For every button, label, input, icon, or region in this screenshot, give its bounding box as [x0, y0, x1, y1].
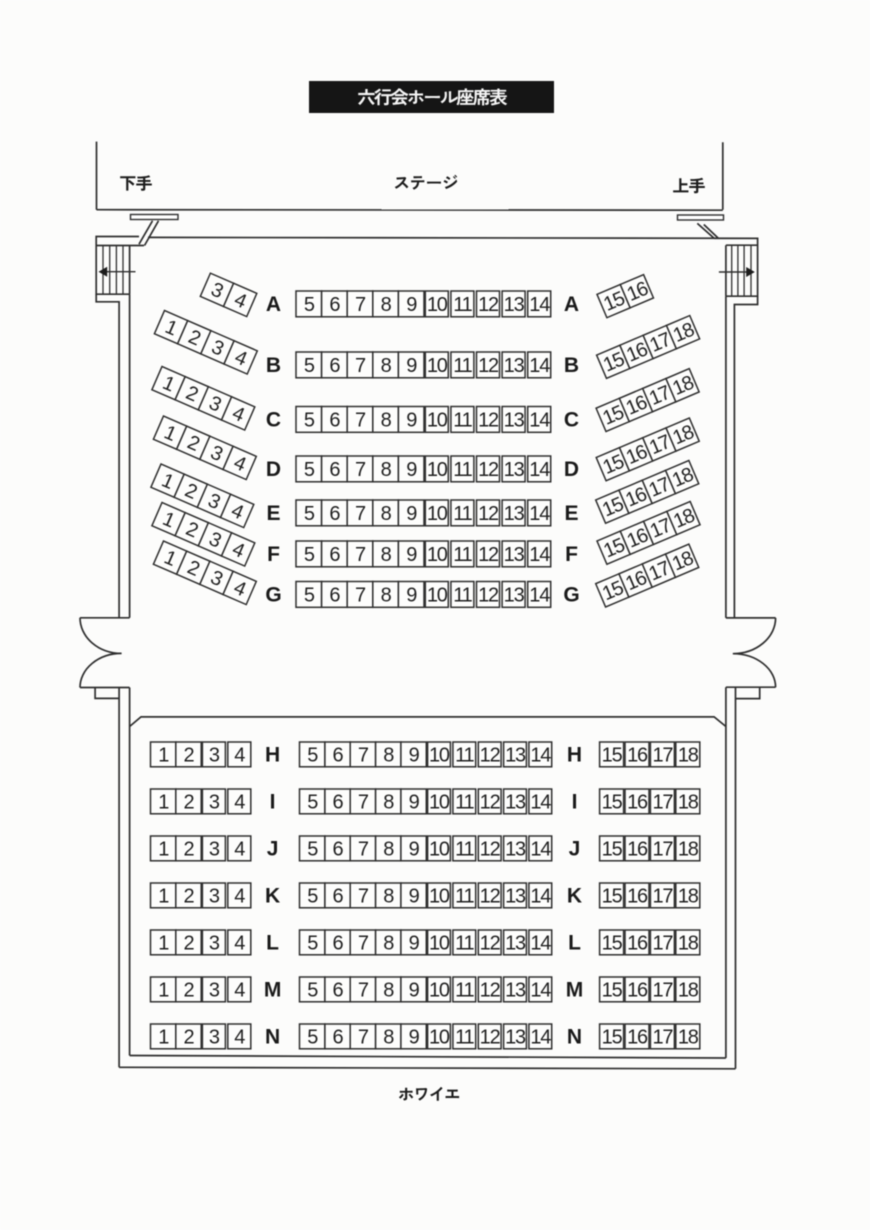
- svg-text:14: 14: [530, 1026, 551, 1048]
- svg-text:13: 13: [505, 885, 526, 907]
- svg-text:12: 12: [478, 409, 499, 431]
- svg-text:6: 6: [333, 885, 344, 907]
- svg-text:14: 14: [529, 459, 550, 481]
- svg-text:D: D: [266, 458, 281, 481]
- svg-text:12: 12: [480, 979, 501, 1001]
- svg-text:10: 10: [429, 791, 450, 813]
- svg-text:3: 3: [209, 932, 220, 954]
- svg-text:11: 11: [455, 791, 474, 813]
- svg-text:5: 5: [304, 584, 315, 606]
- svg-text:2: 2: [184, 838, 195, 860]
- svg-text:H: H: [265, 744, 280, 767]
- svg-text:7: 7: [355, 544, 366, 566]
- svg-text:12: 12: [478, 355, 499, 377]
- svg-text:17: 17: [652, 979, 673, 1001]
- svg-text:4: 4: [234, 932, 245, 954]
- svg-text:11: 11: [455, 979, 474, 1001]
- svg-text:16: 16: [627, 744, 648, 766]
- svg-text:10: 10: [427, 459, 448, 481]
- svg-text:17: 17: [652, 1026, 673, 1048]
- svg-text:3: 3: [209, 979, 220, 1001]
- svg-text:10: 10: [427, 503, 448, 525]
- svg-text:15: 15: [602, 1026, 623, 1048]
- svg-text:14: 14: [529, 355, 550, 377]
- svg-text:11: 11: [455, 932, 474, 954]
- svg-text:6: 6: [333, 838, 344, 860]
- svg-text:8: 8: [381, 503, 392, 525]
- svg-text:8: 8: [383, 885, 394, 907]
- svg-text:11: 11: [453, 409, 472, 431]
- svg-text:F: F: [565, 543, 578, 566]
- svg-text:5: 5: [307, 885, 318, 907]
- svg-text:8: 8: [381, 459, 392, 481]
- svg-text:7: 7: [355, 409, 366, 431]
- svg-text:7: 7: [355, 294, 366, 316]
- svg-text:6: 6: [333, 744, 344, 766]
- svg-text:17: 17: [652, 838, 673, 860]
- svg-text:7: 7: [358, 791, 369, 813]
- svg-text:14: 14: [530, 979, 551, 1001]
- svg-text:9: 9: [406, 503, 417, 525]
- svg-text:8: 8: [381, 584, 392, 606]
- svg-text:10: 10: [429, 979, 450, 1001]
- svg-text:12: 12: [480, 838, 501, 860]
- svg-text:B: B: [266, 354, 281, 377]
- svg-text:12: 12: [478, 544, 499, 566]
- svg-text:6: 6: [333, 791, 344, 813]
- svg-text:12: 12: [480, 885, 501, 907]
- svg-text:5: 5: [307, 979, 318, 1001]
- svg-text:3: 3: [209, 1026, 220, 1048]
- svg-text:8: 8: [383, 838, 394, 860]
- svg-text:13: 13: [504, 294, 525, 316]
- svg-text:18: 18: [678, 744, 699, 766]
- svg-text:7: 7: [355, 459, 366, 481]
- svg-text:7: 7: [355, 503, 366, 525]
- svg-text:9: 9: [409, 885, 420, 907]
- svg-text:5: 5: [307, 1026, 318, 1048]
- svg-text:16: 16: [627, 885, 648, 907]
- svg-text:11: 11: [453, 294, 472, 316]
- svg-text:8: 8: [381, 409, 392, 431]
- svg-text:14: 14: [530, 885, 551, 907]
- svg-text:11: 11: [455, 744, 474, 766]
- svg-text:14: 14: [530, 932, 551, 954]
- svg-text:4: 4: [234, 838, 245, 860]
- svg-text:15: 15: [602, 791, 623, 813]
- svg-text:10: 10: [427, 544, 448, 566]
- svg-text:B: B: [564, 354, 579, 377]
- svg-text:L: L: [568, 932, 581, 955]
- svg-text:8: 8: [383, 979, 394, 1001]
- svg-text:8: 8: [381, 355, 392, 377]
- svg-text:8: 8: [381, 294, 392, 316]
- svg-text:15: 15: [602, 744, 623, 766]
- svg-text:1: 1: [158, 1026, 169, 1048]
- svg-text:15: 15: [602, 932, 623, 954]
- svg-text:8: 8: [383, 932, 394, 954]
- svg-text:5: 5: [304, 409, 315, 431]
- svg-text:14: 14: [529, 409, 550, 431]
- svg-text:8: 8: [381, 544, 392, 566]
- svg-text:2: 2: [184, 932, 195, 954]
- svg-text:5: 5: [307, 838, 318, 860]
- svg-text:6: 6: [329, 503, 340, 525]
- svg-text:5: 5: [304, 544, 315, 566]
- svg-text:9: 9: [406, 355, 417, 377]
- svg-text:M: M: [264, 979, 282, 1002]
- svg-text:2: 2: [184, 791, 195, 813]
- svg-text:3: 3: [209, 838, 220, 860]
- svg-text:G: G: [265, 584, 281, 607]
- svg-text:11: 11: [455, 1026, 474, 1048]
- svg-text:10: 10: [427, 409, 448, 431]
- svg-text:2: 2: [184, 979, 195, 1001]
- svg-text:11: 11: [455, 838, 474, 860]
- svg-text:18: 18: [678, 932, 699, 954]
- svg-text:17: 17: [652, 744, 673, 766]
- svg-text:6: 6: [329, 355, 340, 377]
- svg-text:4: 4: [234, 979, 245, 1001]
- svg-text:7: 7: [355, 355, 366, 377]
- svg-text:17: 17: [652, 791, 673, 813]
- svg-text:6: 6: [333, 1026, 344, 1048]
- svg-text:F: F: [267, 543, 280, 566]
- svg-text:10: 10: [429, 744, 450, 766]
- svg-text:1: 1: [158, 885, 169, 907]
- svg-text:1: 1: [158, 744, 169, 766]
- svg-text:7: 7: [358, 1026, 369, 1048]
- svg-text:18: 18: [678, 838, 699, 860]
- svg-text:5: 5: [304, 294, 315, 316]
- svg-text:11: 11: [453, 584, 472, 606]
- svg-text:L: L: [266, 932, 279, 955]
- svg-text:15: 15: [602, 838, 623, 860]
- svg-text:4: 4: [234, 791, 245, 813]
- svg-text:6: 6: [329, 584, 340, 606]
- svg-text:9: 9: [409, 838, 420, 860]
- svg-text:J: J: [569, 838, 581, 861]
- svg-text:G: G: [563, 584, 579, 607]
- svg-text:10: 10: [429, 885, 450, 907]
- svg-text:13: 13: [504, 459, 525, 481]
- svg-text:14: 14: [530, 791, 551, 813]
- svg-text:5: 5: [304, 503, 315, 525]
- svg-text:13: 13: [504, 355, 525, 377]
- svg-text:13: 13: [504, 409, 525, 431]
- svg-text:16: 16: [627, 838, 648, 860]
- svg-text:12: 12: [480, 1026, 501, 1048]
- svg-text:6: 6: [329, 294, 340, 316]
- svg-text:11: 11: [455, 885, 474, 907]
- svg-text:9: 9: [409, 1026, 420, 1048]
- svg-text:18: 18: [678, 791, 699, 813]
- svg-text:2: 2: [184, 1026, 195, 1048]
- svg-text:12: 12: [478, 584, 499, 606]
- svg-text:14: 14: [529, 544, 550, 566]
- svg-text:10: 10: [427, 294, 448, 316]
- svg-text:18: 18: [678, 885, 699, 907]
- svg-text:9: 9: [406, 544, 417, 566]
- svg-text:7: 7: [358, 885, 369, 907]
- svg-text:16: 16: [627, 791, 648, 813]
- svg-text:12: 12: [480, 744, 501, 766]
- svg-text:K: K: [265, 885, 280, 908]
- svg-text:14: 14: [529, 503, 550, 525]
- svg-text:A: A: [266, 293, 281, 316]
- svg-text:11: 11: [453, 459, 472, 481]
- svg-text:6: 6: [329, 459, 340, 481]
- svg-text:14: 14: [530, 838, 551, 860]
- svg-text:2: 2: [184, 885, 195, 907]
- svg-text:1: 1: [158, 791, 169, 813]
- svg-text:13: 13: [505, 744, 526, 766]
- svg-text:7: 7: [355, 584, 366, 606]
- svg-text:17: 17: [652, 932, 673, 954]
- svg-text:7: 7: [358, 838, 369, 860]
- svg-text:1: 1: [158, 838, 169, 860]
- svg-text:16: 16: [627, 1026, 648, 1048]
- svg-text:E: E: [266, 502, 280, 525]
- svg-text:16: 16: [627, 979, 648, 1001]
- svg-text:C: C: [564, 409, 579, 432]
- svg-text:10: 10: [429, 838, 450, 860]
- svg-text:14: 14: [530, 744, 551, 766]
- svg-text:7: 7: [358, 979, 369, 1001]
- svg-text:14: 14: [529, 294, 550, 316]
- svg-text:9: 9: [406, 584, 417, 606]
- svg-text:6: 6: [329, 544, 340, 566]
- svg-text:N: N: [567, 1026, 582, 1049]
- svg-text:I: I: [572, 791, 578, 814]
- svg-text:5: 5: [307, 791, 318, 813]
- svg-text:12: 12: [478, 503, 499, 525]
- svg-text:K: K: [567, 885, 582, 908]
- svg-text:10: 10: [429, 1026, 450, 1048]
- svg-text:13: 13: [504, 544, 525, 566]
- svg-text:1: 1: [158, 932, 169, 954]
- svg-text:10: 10: [429, 932, 450, 954]
- svg-text:1: 1: [158, 979, 169, 1001]
- svg-text:13: 13: [504, 503, 525, 525]
- svg-text:10: 10: [427, 355, 448, 377]
- svg-text:17: 17: [652, 885, 673, 907]
- svg-text:15: 15: [602, 885, 623, 907]
- svg-text:I: I: [270, 791, 276, 814]
- svg-text:9: 9: [409, 791, 420, 813]
- svg-text:6: 6: [329, 409, 340, 431]
- svg-text:6: 6: [333, 932, 344, 954]
- svg-text:12: 12: [478, 294, 499, 316]
- svg-text:18: 18: [678, 979, 699, 1001]
- svg-text:4: 4: [234, 885, 245, 907]
- svg-text:J: J: [267, 838, 279, 861]
- svg-text:8: 8: [383, 791, 394, 813]
- svg-text:12: 12: [480, 932, 501, 954]
- svg-text:5: 5: [304, 355, 315, 377]
- svg-text:13: 13: [505, 791, 526, 813]
- svg-text:9: 9: [406, 459, 417, 481]
- svg-text:3: 3: [209, 791, 220, 813]
- svg-text:11: 11: [453, 355, 472, 377]
- svg-text:7: 7: [358, 744, 369, 766]
- svg-text:13: 13: [505, 979, 526, 1001]
- svg-text:4: 4: [234, 744, 245, 766]
- svg-text:13: 13: [504, 584, 525, 606]
- svg-text:4: 4: [234, 1026, 245, 1048]
- svg-text:3: 3: [209, 885, 220, 907]
- svg-text:13: 13: [505, 932, 526, 954]
- svg-text:5: 5: [307, 744, 318, 766]
- svg-text:14: 14: [529, 584, 550, 606]
- svg-text:9: 9: [409, 979, 420, 1001]
- svg-text:M: M: [566, 979, 584, 1002]
- svg-text:13: 13: [505, 1026, 526, 1048]
- svg-text:11: 11: [453, 544, 472, 566]
- svg-text:7: 7: [358, 932, 369, 954]
- svg-text:5: 5: [304, 459, 315, 481]
- svg-text:H: H: [567, 744, 582, 767]
- svg-text:9: 9: [406, 409, 417, 431]
- svg-text:12: 12: [478, 459, 499, 481]
- svg-text:12: 12: [480, 791, 501, 813]
- svg-text:E: E: [564, 502, 578, 525]
- svg-text:13: 13: [505, 838, 526, 860]
- svg-text:16: 16: [627, 932, 648, 954]
- svg-text:8: 8: [383, 1026, 394, 1048]
- svg-text:11: 11: [453, 503, 472, 525]
- svg-text:A: A: [564, 293, 579, 316]
- svg-text:18: 18: [678, 1026, 699, 1048]
- svg-text:9: 9: [406, 294, 417, 316]
- svg-text:9: 9: [409, 744, 420, 766]
- svg-text:2: 2: [184, 744, 195, 766]
- svg-text:C: C: [266, 409, 281, 432]
- svg-text:15: 15: [602, 979, 623, 1001]
- svg-text:N: N: [265, 1026, 280, 1049]
- svg-text:9: 9: [409, 932, 420, 954]
- svg-text:3: 3: [209, 744, 220, 766]
- svg-text:5: 5: [307, 932, 318, 954]
- svg-text:D: D: [564, 458, 579, 481]
- svg-text:6: 6: [333, 979, 344, 1001]
- svg-text:10: 10: [427, 584, 448, 606]
- svg-text:8: 8: [383, 744, 394, 766]
